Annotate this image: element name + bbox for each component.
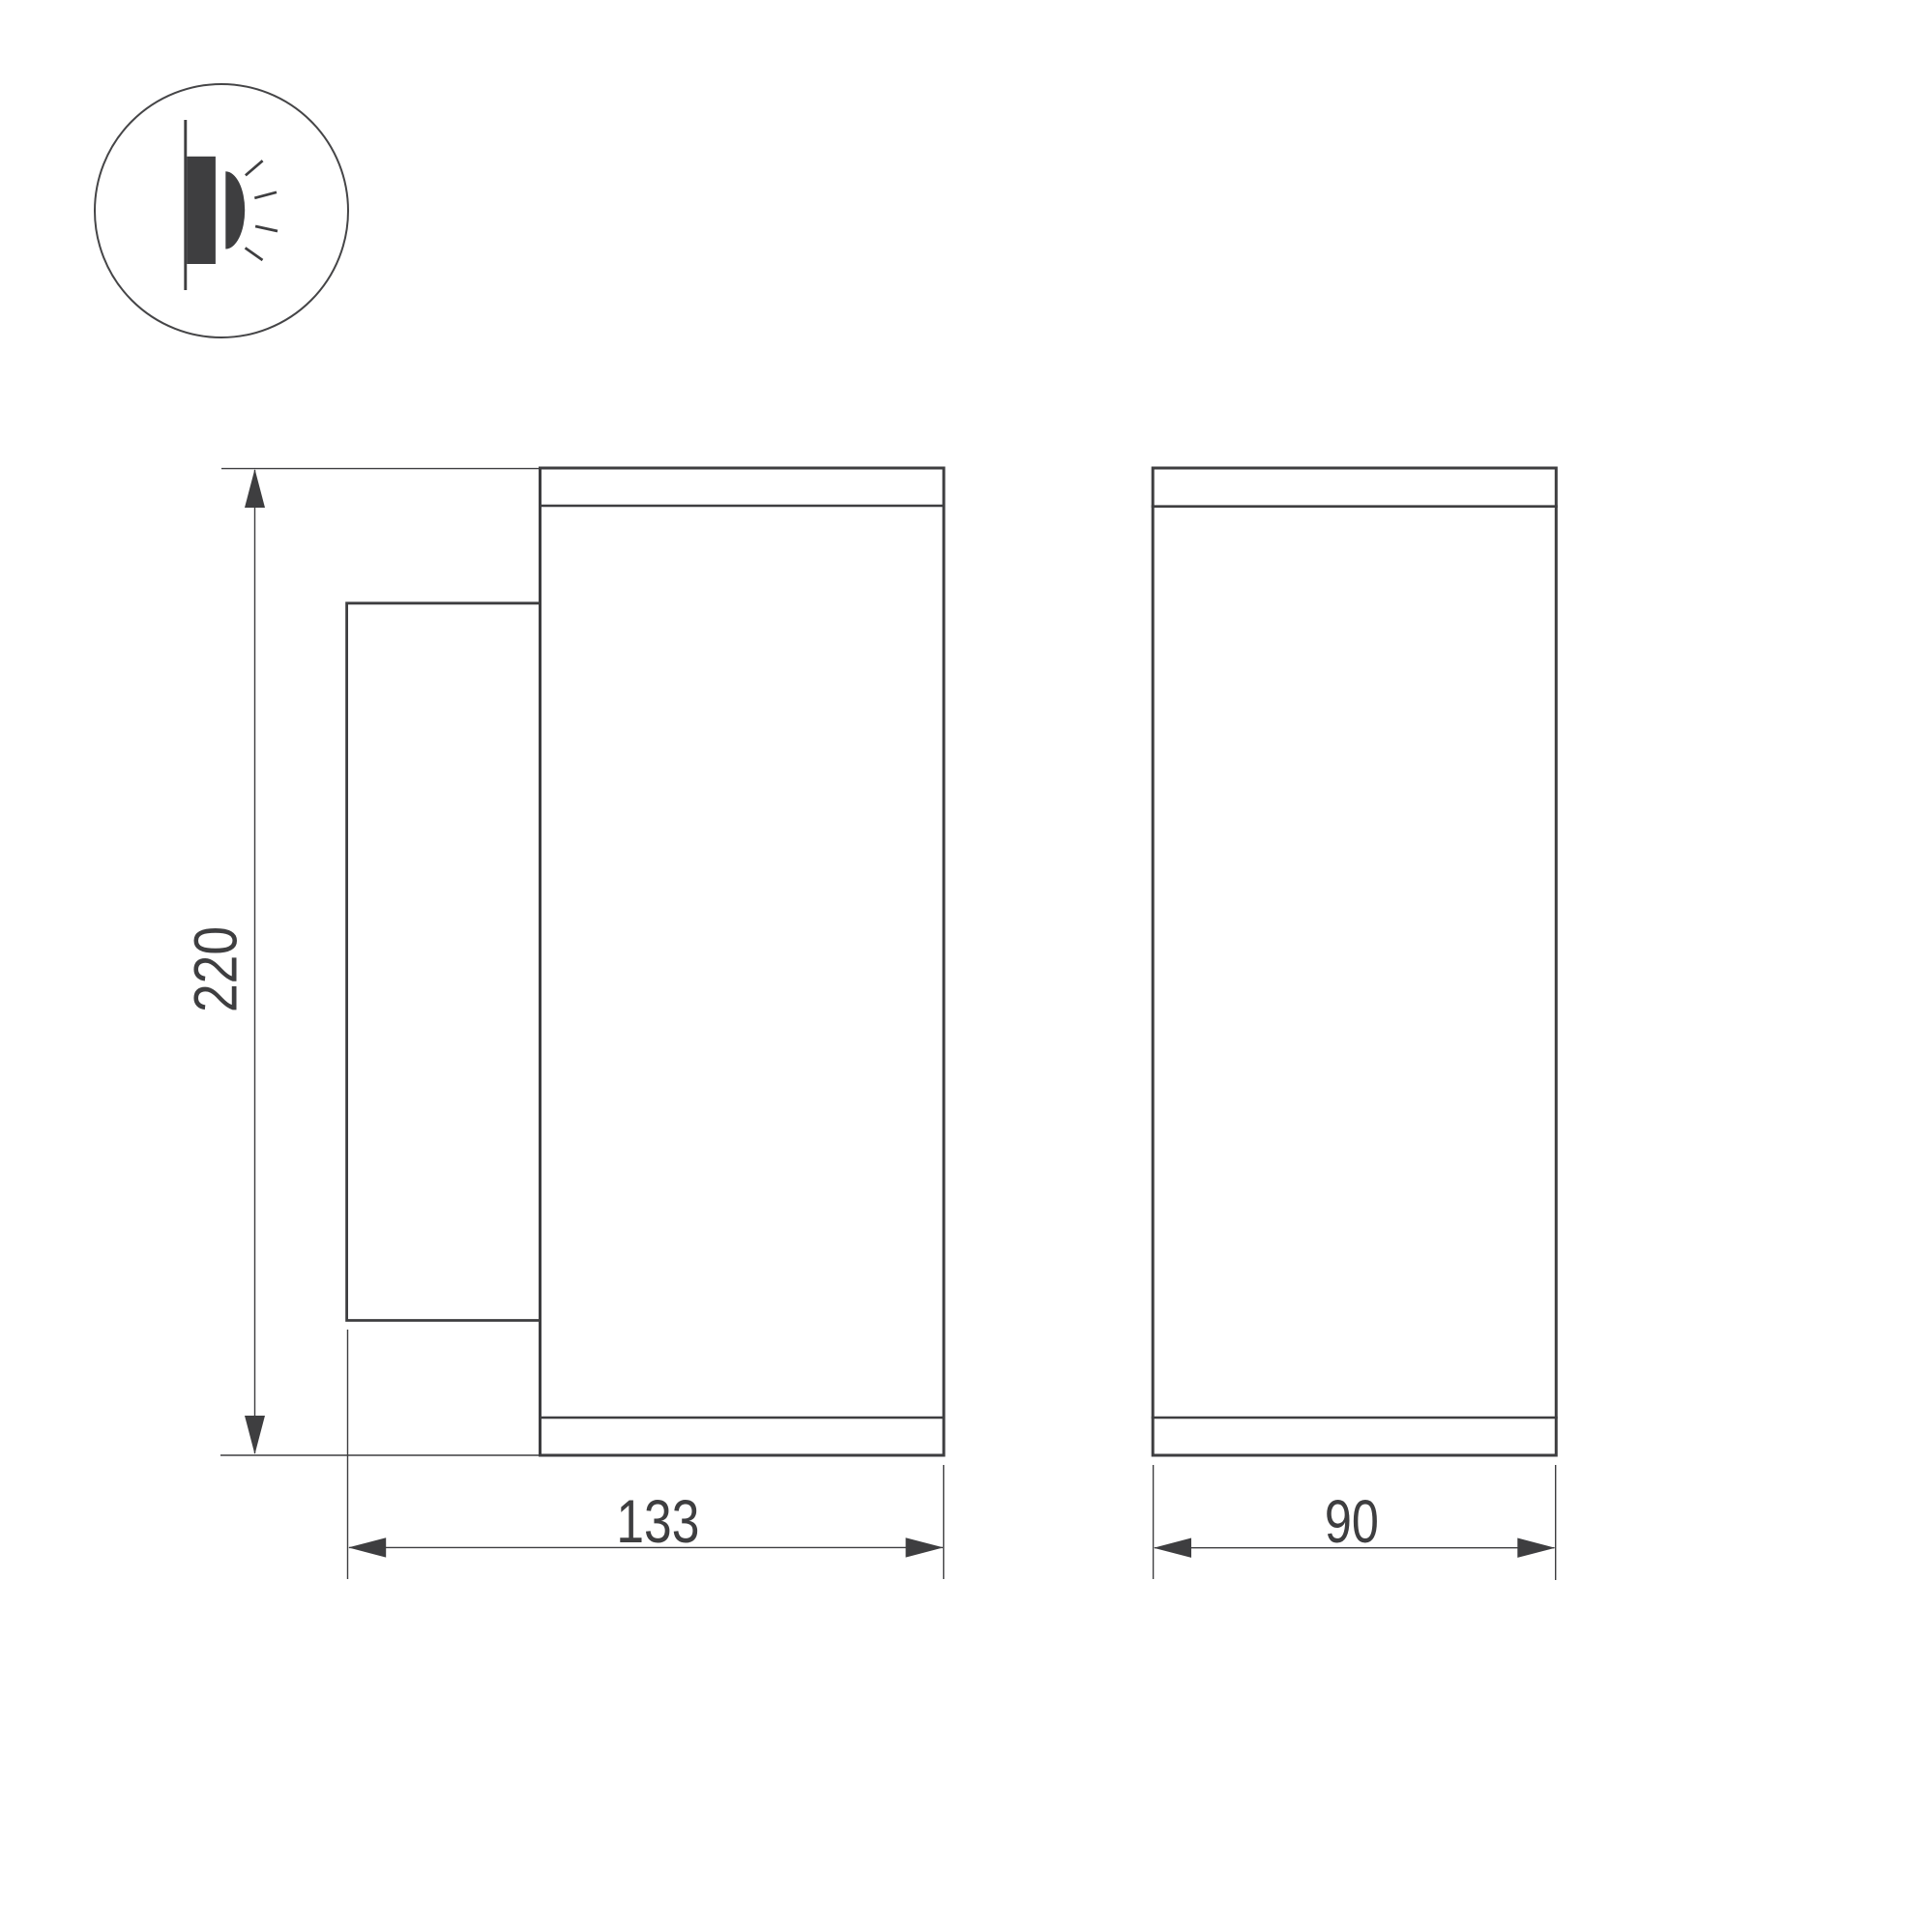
svg-text:90: 90 (1325, 1488, 1379, 1556)
svg-text:220: 220 (182, 926, 249, 1012)
svg-text:133: 133 (616, 1488, 699, 1556)
